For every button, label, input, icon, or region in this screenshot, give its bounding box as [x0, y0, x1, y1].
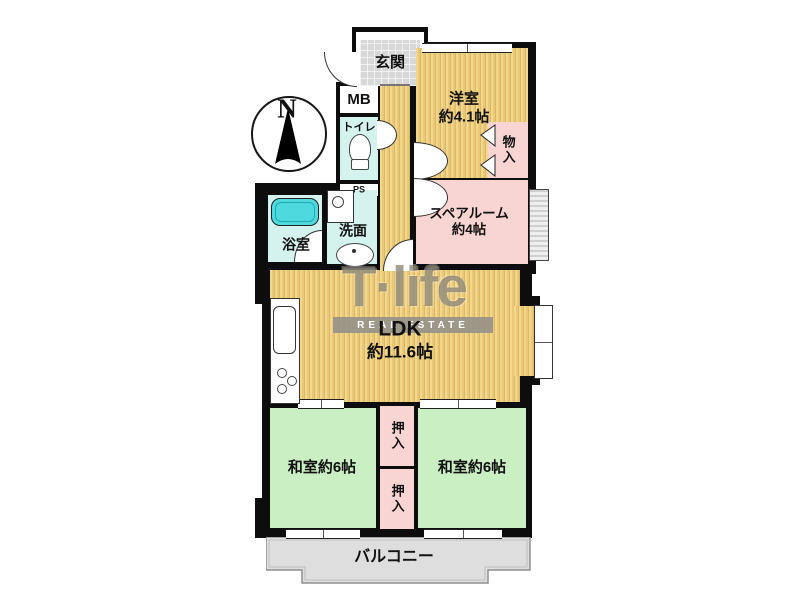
storage-folding-door-icon: [480, 124, 496, 178]
label-spare-size: 約4帖: [429, 222, 509, 238]
genkan-step-line: [380, 84, 410, 86]
sliding-door-ldk-right: [420, 399, 496, 409]
sliding-door-ldk-left: [298, 399, 344, 409]
label-spare-room: スペアルーム 約4帖: [429, 206, 509, 238]
compass-needle-icon: [272, 108, 304, 168]
label-bath: 浴室: [282, 237, 310, 254]
room-ldk-bay: [514, 306, 534, 376]
entrance-door-arc: [324, 52, 357, 87]
watermark-brand: T·life: [296, 254, 512, 320]
label-toilet: トイレ: [343, 122, 376, 135]
label-ldk-name: LDK: [367, 318, 433, 343]
label-western-size: 約4.1帖: [439, 108, 490, 126]
label-genkan: 玄関: [375, 54, 405, 72]
label-mb: MB: [347, 91, 370, 109]
wash-basin-faucet-dot: [352, 249, 356, 253]
label-ldk-size: 約11.6帖: [367, 342, 433, 362]
label-western-name: 洋室: [439, 90, 490, 108]
window-spare-right: [529, 189, 549, 261]
label-wash: 洗面: [339, 223, 367, 240]
floor-plan-canvas: N T·life REAL ESTATE 玄関 MB トイレ PS 浴室 洗面 …: [0, 0, 800, 600]
label-closet-upper: 押入: [389, 421, 404, 451]
window-western-top: [422, 43, 512, 53]
stove-burner-1: [277, 368, 287, 378]
label-ldk: LDK 約11.6帖: [367, 318, 433, 363]
window-japanese-right-bottom: [424, 529, 502, 539]
toilet-tank-icon: [351, 159, 369, 170]
label-spare-name: スペアルーム: [429, 206, 509, 222]
stove-burner-2: [287, 376, 297, 386]
label-western-room: 洋室 約4.1帖: [439, 90, 490, 125]
label-closet-lower: 押入: [389, 484, 404, 514]
label-storage: 物入: [500, 135, 515, 165]
kitchen-sink-icon: [273, 306, 296, 354]
label-japanese-left: 和室約6帖: [288, 459, 356, 477]
stove-burner-3: [277, 384, 287, 394]
washer-icon: [332, 196, 344, 208]
label-ps: PS: [353, 185, 365, 196]
bathtub-icon: [271, 198, 319, 226]
window-ldk-right: [534, 305, 553, 379]
window-japanese-left-bottom: [286, 529, 360, 539]
label-japanese-right: 和室約6帖: [438, 459, 506, 477]
label-balcony: バルコニー: [354, 549, 434, 568]
